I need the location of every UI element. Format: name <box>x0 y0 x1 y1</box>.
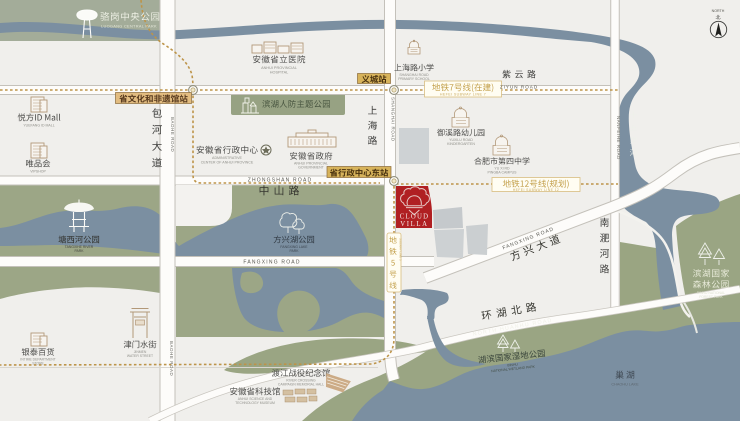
svg-text:HEFEI SUBWAY LINE 12: HEFEI SUBWAY LINE 12 <box>513 188 559 192</box>
svg-text:PARK: PARK <box>75 249 85 253</box>
svg-text:STORE: STORE <box>32 362 44 366</box>
svg-text:NANFEIHE ROAD: NANFEIHE ROAD <box>616 116 621 160</box>
svg-text:ANHUI PROVINCIAL: ANHUI PROVINCIAL <box>261 66 297 70</box>
svg-text:CHAOHU LAKE: CHAOHU LAKE <box>611 383 639 387</box>
svg-text:ADMINISTRATIVE: ADMINISTRATIVE <box>212 156 242 160</box>
svg-text:HOSPITAL: HOSPITAL <box>270 71 289 75</box>
svg-text:WATER STREET: WATER STREET <box>127 354 153 358</box>
svg-text:BAOHE ROAD: BAOHE ROAD <box>169 341 174 376</box>
svg-text:GOVERNMENT: GOVERNMENT <box>298 166 325 170</box>
svg-text:BAOHE ROAD: BAOHE ROAD <box>170 117 175 152</box>
svg-text:HEFEI SUBWAY LINE 7: HEFEI SUBWAY LINE 7 <box>440 93 486 97</box>
svg-text:FANGXING ROAD: FANGXING ROAD <box>243 260 300 266</box>
svg-text:PARK: PARK <box>290 249 300 253</box>
svg-text:CAMPAIGN MEMORIAL HALL: CAMPAIGN MEMORIAL HALL <box>278 383 324 387</box>
svg-text:ZIYUN ROAD: ZIYUN ROAD <box>500 85 538 90</box>
svg-text:PRIMARY SCHOOL: PRIMARY SCHOOL <box>398 77 430 81</box>
svg-text:KINDERGARTEN: KINDERGARTEN <box>447 142 475 146</box>
svg-text:NORTH: NORTH <box>712 9 725 13</box>
svg-text:YUEFANG ID MALL: YUEFANG ID MALL <box>23 124 54 128</box>
svg-text:LUOGANG CENTRAL PARK: LUOGANG CENTRAL PARK <box>101 24 157 29</box>
svg-text:SUBWAY LINE 5: SUBWAY LINE 5 <box>399 238 403 261</box>
svg-text:FOREST PARK: FOREST PARK <box>699 295 723 299</box>
svg-text:CLOUD: CLOUD <box>400 214 429 221</box>
svg-text:CENTER OF ANHUI PROVINCE: CENTER OF ANHUI PROVINCE <box>201 161 254 165</box>
svg-text:TECHNOLOGY MUSEUM: TECHNOLOGY MUSEUM <box>235 401 275 405</box>
svg-text:VILLA: VILLA <box>400 221 428 228</box>
svg-text:SHANGHAI ROAD: SHANGHAI ROAD <box>391 97 396 142</box>
svg-text:VIPSHOP: VIPSHOP <box>30 170 46 174</box>
svg-text:ZHONGSHAN ROAD: ZHONGSHAN ROAD <box>248 178 313 184</box>
svg-text:PINGBA CAMPUS: PINGBA CAMPUS <box>488 171 518 175</box>
